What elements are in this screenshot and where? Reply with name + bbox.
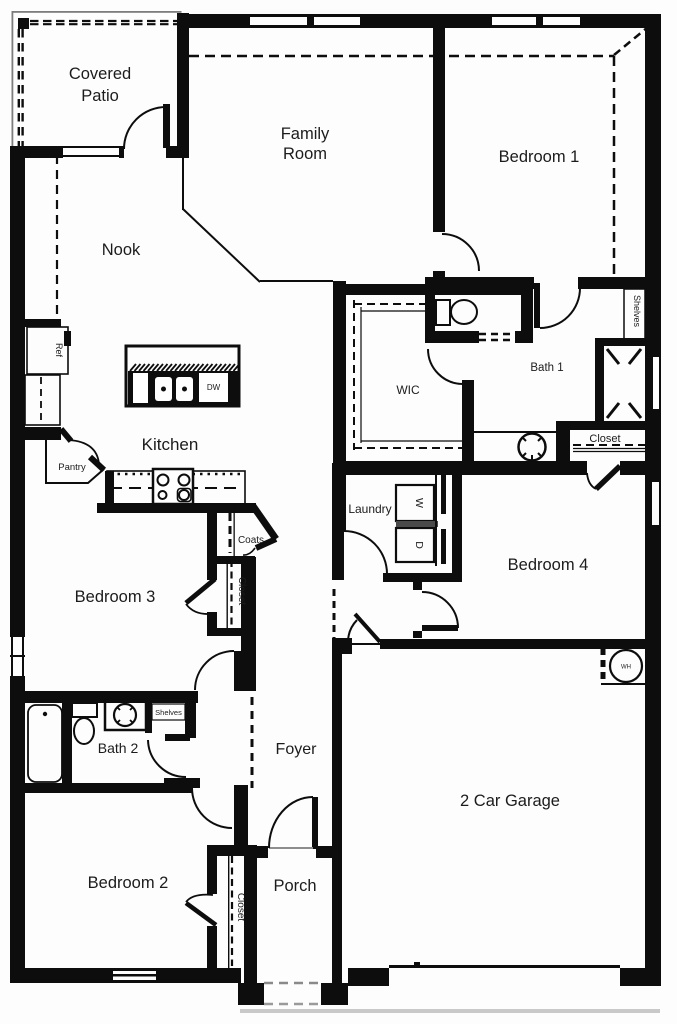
svg-text:Bedroom 4: Bedroom 4 (508, 556, 589, 574)
svg-text:Bath 2: Bath 2 (98, 740, 139, 756)
svg-text:Shelves: Shelves (155, 708, 182, 717)
svg-text:Covered: Covered (69, 65, 131, 83)
svg-text:WIC: WIC (396, 383, 420, 397)
svg-text:WH: WH (621, 665, 631, 671)
svg-text:Closet: Closet (589, 433, 620, 445)
svg-text:Bedroom 3: Bedroom 3 (75, 588, 156, 606)
svg-text:2 Car Garage: 2 Car Garage (460, 792, 560, 810)
svg-text:Ref: Ref (54, 343, 64, 358)
svg-text:Bedroom 1: Bedroom 1 (499, 148, 580, 166)
svg-text:Shelves: Shelves (632, 295, 642, 328)
svg-text:Coats: Coats (238, 535, 264, 546)
svg-text:DW: DW (207, 383, 221, 392)
svg-text:Room: Room (283, 145, 327, 163)
svg-text:Porch: Porch (273, 877, 316, 895)
svg-text:Pantry: Pantry (58, 462, 86, 473)
svg-text:W: W (413, 498, 425, 508)
svg-text:Bedroom 2: Bedroom 2 (88, 874, 169, 892)
svg-text:Foyer: Foyer (276, 741, 318, 758)
svg-text:Closet: Closet (236, 577, 247, 606)
svg-text:Patio: Patio (81, 87, 119, 105)
svg-text:Family: Family (281, 125, 330, 143)
svg-text:Kitchen: Kitchen (142, 435, 199, 454)
svg-text:Nook: Nook (102, 241, 141, 259)
svg-text:Bath 1: Bath 1 (530, 362, 563, 374)
svg-text:Laundry: Laundry (348, 502, 391, 516)
svg-text:D: D (413, 541, 425, 549)
